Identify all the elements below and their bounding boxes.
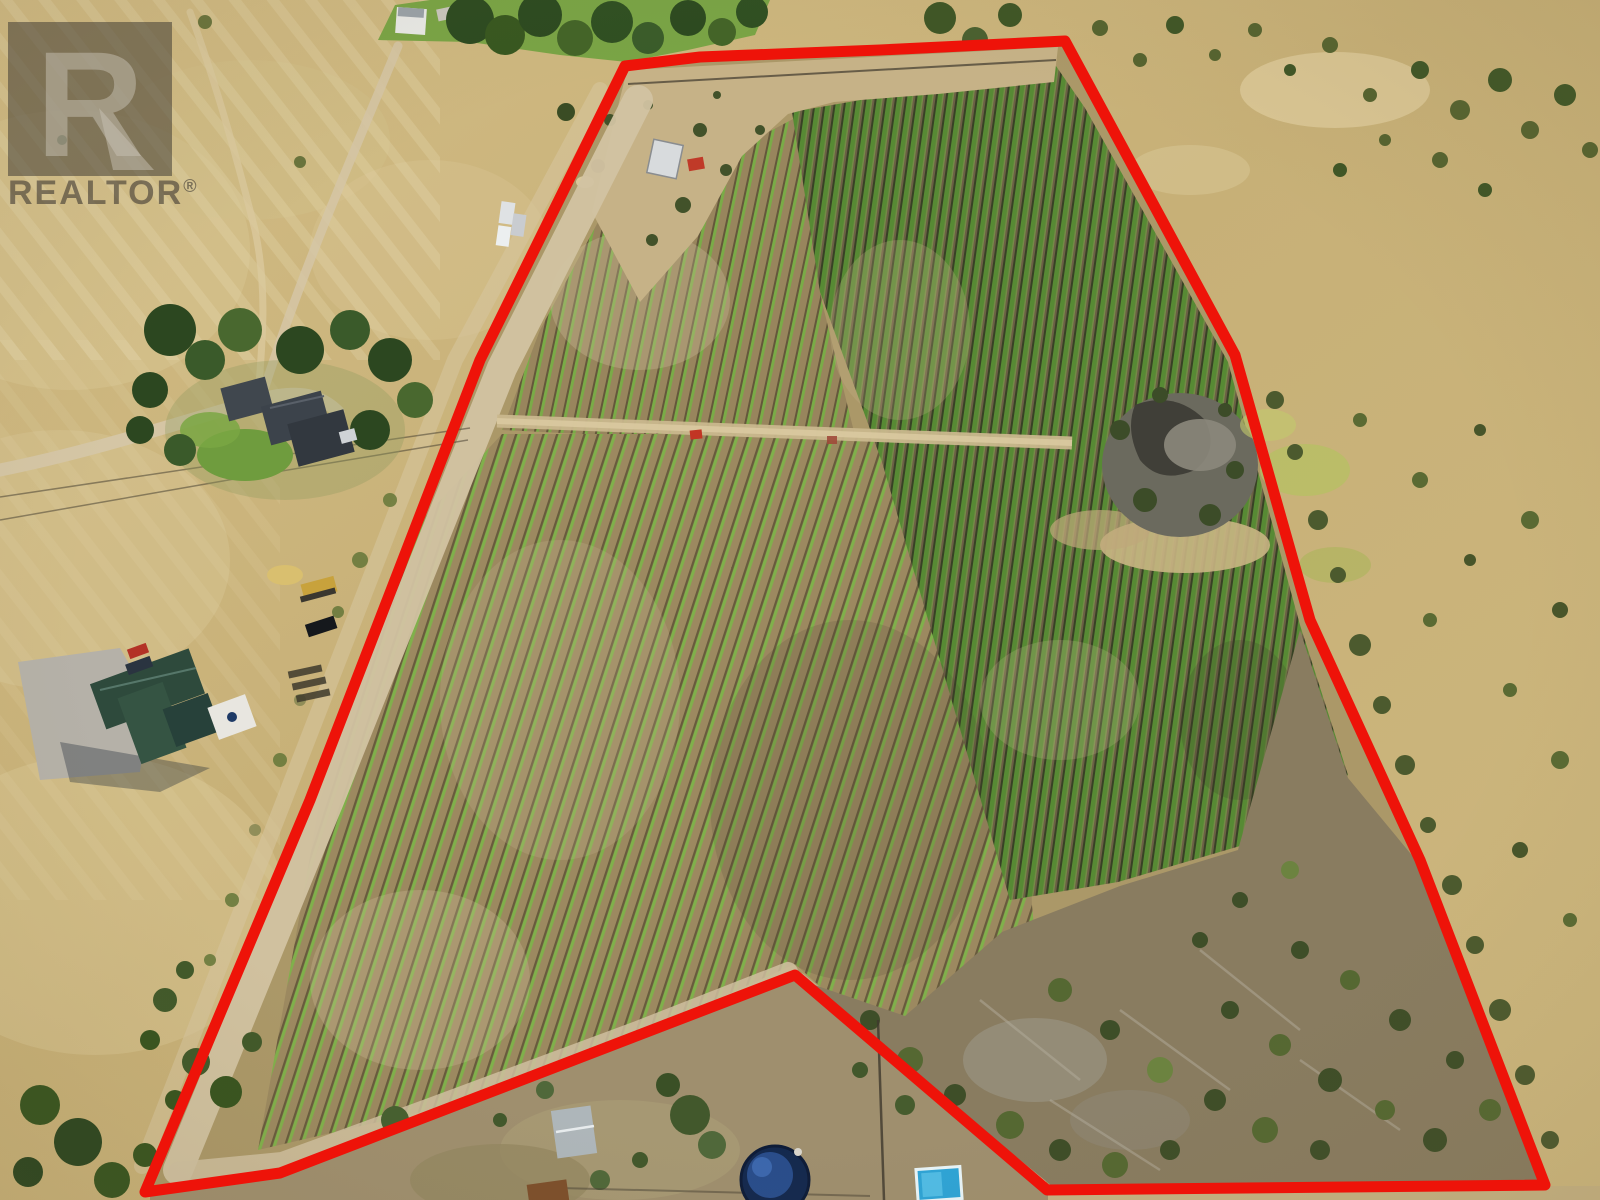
vignette [0, 0, 1600, 1200]
aerial-photo-svg: R REALTOR® [0, 0, 1600, 1200]
realtor-registered-mark: ® [183, 176, 198, 196]
realtor-watermark: R REALTOR® [8, 20, 198, 212]
aerial-listing-photo: R REALTOR® [0, 0, 1600, 1200]
realtor-wordmark: REALTOR® [8, 174, 198, 212]
realtor-wordmark-text: REALTOR [8, 174, 183, 212]
